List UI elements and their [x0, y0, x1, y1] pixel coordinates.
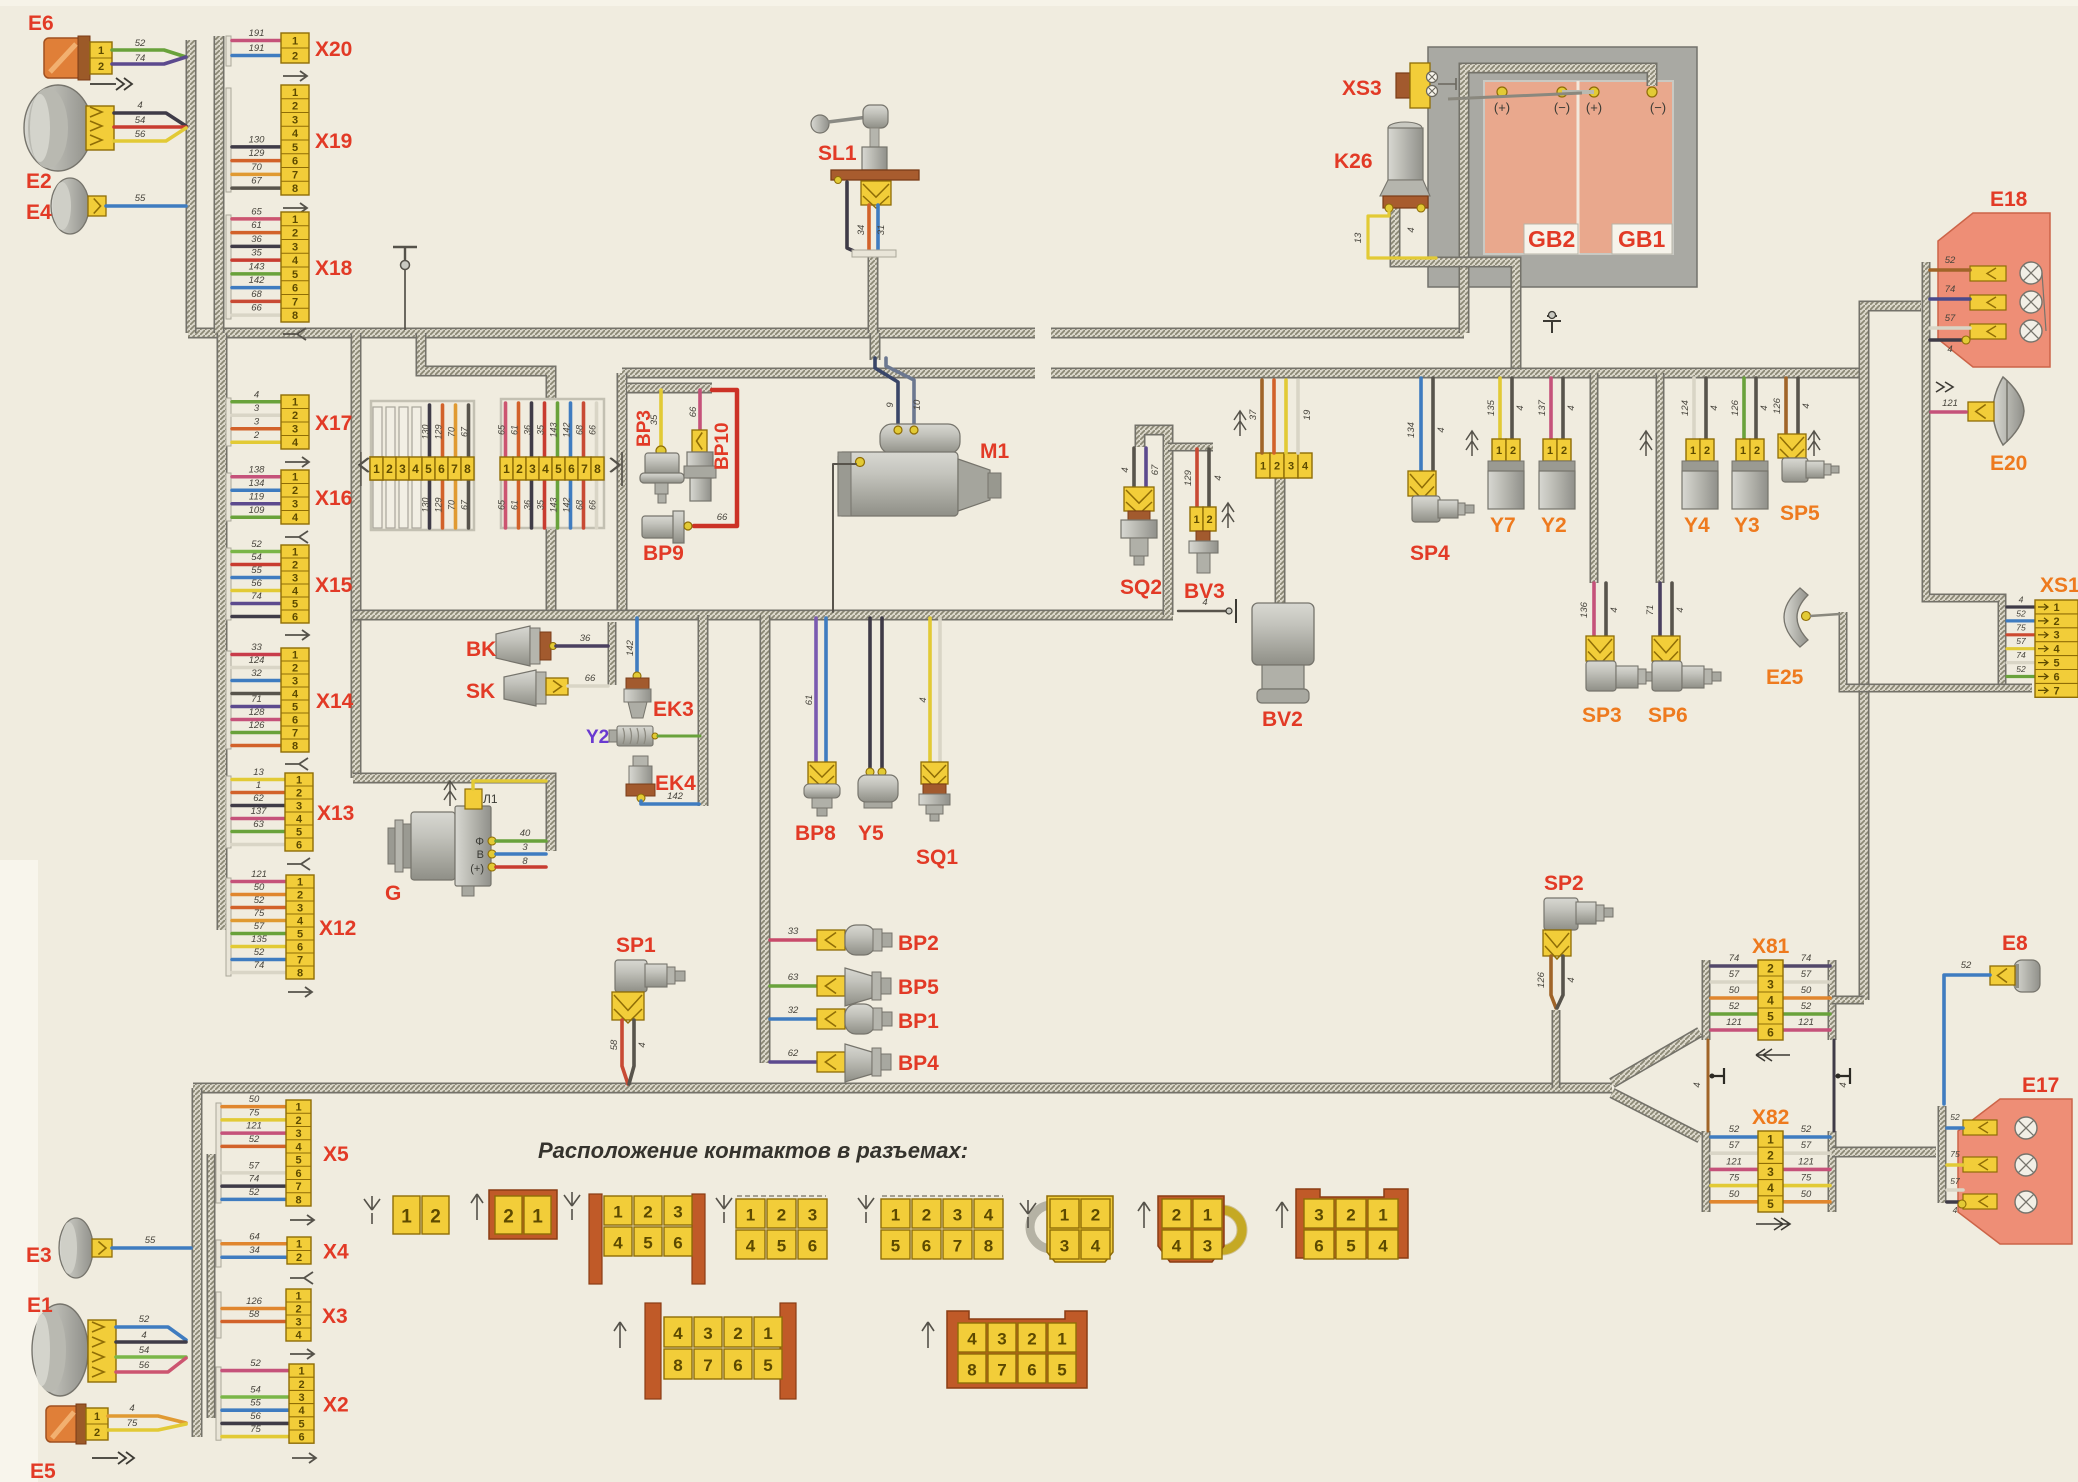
svg-text:4: 4 [1947, 344, 1952, 355]
svg-text:6: 6 [1027, 1360, 1036, 1379]
svg-text:3: 3 [1767, 1165, 1774, 1179]
svg-text:75: 75 [1729, 1173, 1740, 1184]
svg-text:4: 4 [1172, 1236, 1182, 1255]
svg-text:1: 1 [292, 546, 298, 558]
svg-text:Л1: Л1 [483, 792, 498, 806]
svg-text:1: 1 [292, 87, 298, 99]
svg-text:BP4: BP4 [898, 1052, 939, 1075]
svg-text:136: 136 [1579, 601, 1590, 618]
svg-text:X13: X13 [317, 802, 354, 825]
svg-text:74: 74 [2016, 650, 2026, 660]
svg-text:6: 6 [295, 1168, 301, 1180]
svg-text:57: 57 [1945, 313, 1956, 324]
svg-text:126: 126 [1772, 397, 1783, 414]
svg-text:52: 52 [254, 895, 265, 906]
svg-text:137: 137 [1537, 399, 1548, 416]
svg-text:5: 5 [292, 598, 298, 610]
svg-text:54: 54 [250, 1385, 261, 1396]
svg-text:X81: X81 [1752, 935, 1790, 958]
svg-text:1: 1 [2053, 602, 2059, 614]
svg-text:Y2: Y2 [1541, 514, 1567, 537]
svg-text:134: 134 [249, 478, 265, 489]
svg-text:7: 7 [292, 727, 298, 739]
svg-text:SQ2: SQ2 [1120, 576, 1162, 599]
svg-text:SP5: SP5 [1780, 502, 1820, 525]
svg-text:3: 3 [1060, 1236, 1069, 1255]
svg-text:3: 3 [292, 424, 298, 436]
svg-text:1: 1 [297, 876, 303, 888]
svg-text:7: 7 [997, 1360, 1006, 1379]
svg-text:57: 57 [1729, 969, 1740, 980]
svg-text:4: 4 [1709, 405, 1720, 410]
svg-text:67: 67 [460, 426, 470, 437]
svg-text:4: 4 [1436, 427, 1447, 432]
svg-text:1: 1 [1496, 445, 1502, 457]
svg-text:4: 4 [2053, 644, 2060, 656]
svg-text:4: 4 [918, 697, 929, 702]
svg-text:4: 4 [412, 462, 419, 476]
svg-text:E1: E1 [27, 1294, 53, 1317]
svg-text:4: 4 [1759, 405, 1770, 410]
svg-text:5: 5 [1767, 1197, 1774, 1211]
svg-text:4: 4 [1675, 607, 1686, 612]
svg-text:130: 130 [249, 134, 266, 145]
svg-text:E5: E5 [30, 1460, 56, 1482]
svg-text:13: 13 [1353, 232, 1364, 243]
svg-text:4: 4 [1302, 460, 1309, 472]
svg-text:74: 74 [254, 960, 265, 971]
svg-text:(−): (−) [1554, 100, 1570, 115]
svg-text:2: 2 [503, 1206, 514, 1227]
svg-text:33: 33 [251, 642, 262, 653]
svg-text:XS3: XS3 [1342, 77, 1382, 100]
svg-text:70: 70 [447, 427, 457, 437]
svg-text:36: 36 [523, 500, 533, 510]
svg-text:130: 130 [421, 497, 431, 512]
svg-text:2: 2 [1767, 1149, 1774, 1163]
svg-text:BP8: BP8 [795, 822, 836, 845]
svg-text:5: 5 [777, 1236, 786, 1255]
svg-text:6: 6 [438, 462, 445, 476]
svg-text:4: 4 [292, 585, 299, 597]
svg-text:5: 5 [555, 462, 562, 476]
svg-text:BP9: BP9 [643, 542, 684, 565]
svg-text:33: 33 [788, 926, 799, 937]
svg-text:66: 66 [688, 406, 699, 417]
svg-text:52: 52 [1729, 1001, 1740, 1012]
svg-text:57: 57 [2016, 636, 2026, 646]
svg-text:61: 61 [251, 220, 262, 231]
svg-text:128: 128 [249, 707, 266, 718]
svg-text:75: 75 [250, 1424, 261, 1435]
svg-text:6: 6 [292, 156, 298, 168]
svg-text:7: 7 [292, 169, 298, 181]
svg-text:2: 2 [292, 485, 298, 497]
svg-text:3: 3 [292, 572, 298, 584]
svg-text:19: 19 [1302, 409, 1313, 420]
svg-text:X82: X82 [1752, 1106, 1789, 1129]
svg-text:8: 8 [967, 1360, 976, 1379]
svg-text:Y4: Y4 [1684, 514, 1710, 537]
svg-text:E3: E3 [26, 1244, 52, 1267]
svg-text:4: 4 [1609, 607, 1620, 612]
svg-text:2: 2 [1704, 445, 1710, 457]
svg-text:52: 52 [1801, 1001, 1812, 1012]
svg-text:121: 121 [1798, 1017, 1814, 1028]
svg-text:55: 55 [135, 193, 146, 204]
svg-text:1: 1 [401, 1206, 412, 1227]
svg-text:63: 63 [253, 819, 264, 830]
svg-text:8: 8 [292, 740, 298, 752]
svg-text:8: 8 [297, 967, 303, 979]
svg-text:4: 4 [613, 1233, 623, 1252]
svg-text:56: 56 [250, 1411, 261, 1422]
svg-text:4: 4 [984, 1205, 994, 1224]
svg-text:7: 7 [703, 1356, 712, 1375]
svg-text:4: 4 [1406, 227, 1417, 232]
svg-text:E2: E2 [26, 170, 52, 193]
svg-text:32: 32 [251, 668, 262, 679]
svg-text:2: 2 [296, 787, 302, 799]
svg-text:X4: X4 [323, 1241, 349, 1264]
svg-text:50: 50 [1801, 1189, 1812, 1200]
svg-text:57: 57 [1950, 1176, 1960, 1186]
svg-text:1: 1 [292, 397, 298, 409]
svg-text:3: 3 [292, 241, 298, 253]
svg-text:1: 1 [298, 1366, 304, 1378]
svg-text:67: 67 [251, 176, 262, 187]
svg-text:52: 52 [2016, 664, 2026, 674]
svg-text:121: 121 [1726, 1156, 1742, 1167]
svg-text:109: 109 [249, 505, 266, 516]
svg-text:6: 6 [296, 839, 302, 851]
svg-text:55: 55 [250, 1398, 261, 1409]
svg-text:4: 4 [1767, 993, 1774, 1007]
svg-text:126: 126 [249, 720, 266, 731]
svg-text:X5: X5 [323, 1143, 349, 1166]
svg-text:1: 1 [1203, 1205, 1212, 1224]
svg-text:191: 191 [249, 28, 265, 39]
svg-text:BP10: BP10 [712, 422, 733, 470]
svg-text:75: 75 [254, 908, 265, 919]
svg-text:4: 4 [298, 1405, 305, 1417]
svg-text:3: 3 [295, 1128, 301, 1140]
svg-text:4: 4 [1566, 405, 1577, 410]
svg-text:5: 5 [292, 701, 298, 713]
svg-text:M1: M1 [980, 440, 1009, 463]
svg-text:B: B [477, 849, 484, 861]
svg-text:74: 74 [1945, 284, 1956, 295]
svg-text:2: 2 [98, 61, 104, 73]
svg-text:52: 52 [139, 1314, 150, 1325]
svg-text:52: 52 [250, 1358, 261, 1369]
svg-text:3: 3 [2053, 630, 2059, 642]
svg-text:4: 4 [295, 1329, 302, 1341]
svg-text:10: 10 [912, 399, 923, 410]
svg-text:4: 4 [292, 688, 299, 700]
svg-text:34: 34 [249, 1245, 260, 1256]
svg-text:71: 71 [251, 694, 262, 705]
svg-text:3: 3 [953, 1205, 962, 1224]
svg-text:2: 2 [1561, 445, 1567, 457]
svg-text:56: 56 [135, 129, 146, 140]
svg-text:7: 7 [581, 462, 588, 476]
svg-text:1: 1 [532, 1206, 543, 1227]
svg-text:(+): (+) [1494, 100, 1510, 115]
svg-text:52: 52 [1950, 1112, 1960, 1122]
svg-text:56: 56 [251, 578, 262, 589]
svg-text:BV2: BV2 [1262, 708, 1303, 731]
svg-text:8: 8 [984, 1236, 993, 1255]
svg-text:54: 54 [251, 552, 262, 563]
svg-text:135: 135 [1486, 399, 1497, 416]
svg-text:4: 4 [542, 462, 549, 476]
svg-text:7: 7 [297, 954, 303, 966]
svg-text:1: 1 [1767, 1132, 1774, 1146]
svg-text:4: 4 [292, 255, 299, 267]
svg-text:4: 4 [1767, 1181, 1774, 1195]
svg-text:121: 121 [1942, 398, 1958, 409]
svg-text:2: 2 [386, 462, 393, 476]
svg-text:8: 8 [292, 310, 298, 322]
svg-text:5: 5 [891, 1236, 900, 1255]
svg-text:2: 2 [1754, 445, 1760, 457]
svg-text:57: 57 [254, 921, 265, 932]
svg-text:3: 3 [808, 1205, 817, 1224]
svg-text:SP4: SP4 [1410, 542, 1450, 565]
svg-text:5: 5 [292, 142, 298, 154]
svg-text:40: 40 [520, 828, 531, 839]
svg-text:62: 62 [788, 1048, 799, 1059]
svg-text:142: 142 [667, 791, 684, 802]
svg-text:3: 3 [297, 902, 303, 914]
svg-text:E17: E17 [2022, 1074, 2059, 1097]
svg-text:1: 1 [1193, 514, 1199, 526]
svg-text:5: 5 [2053, 658, 2059, 670]
svg-text:3: 3 [292, 114, 298, 126]
svg-text:BP2: BP2 [898, 932, 939, 955]
svg-text:G: G [385, 882, 401, 905]
svg-text:67: 67 [460, 499, 470, 510]
svg-text:2: 2 [253, 430, 260, 441]
svg-text:130: 130 [421, 424, 431, 439]
svg-text:56: 56 [139, 1360, 150, 1371]
svg-text:3: 3 [254, 416, 260, 427]
svg-text:XS1: XS1 [2040, 574, 2078, 597]
svg-text:58: 58 [609, 1039, 620, 1050]
svg-text:61: 61 [804, 695, 815, 706]
svg-text:6: 6 [922, 1236, 931, 1255]
svg-text:143: 143 [549, 422, 559, 437]
svg-text:2: 2 [430, 1206, 441, 1227]
svg-text:4: 4 [673, 1324, 683, 1343]
svg-text:52: 52 [1945, 255, 1956, 266]
svg-text:SQ1: SQ1 [916, 846, 958, 869]
svg-text:4: 4 [1801, 403, 1812, 408]
svg-text:6: 6 [292, 714, 298, 726]
svg-text:1: 1 [746, 1205, 755, 1224]
svg-text:57: 57 [1729, 1140, 1740, 1151]
svg-text:4: 4 [967, 1329, 977, 1348]
svg-text:5: 5 [292, 269, 298, 281]
svg-text:66: 66 [717, 512, 728, 523]
svg-text:1: 1 [296, 1239, 302, 1251]
svg-text:4: 4 [292, 512, 299, 524]
svg-text:138: 138 [249, 464, 266, 475]
svg-text:4: 4 [137, 100, 142, 111]
svg-text:1: 1 [373, 462, 380, 476]
svg-text:54: 54 [139, 1345, 150, 1356]
svg-text:63: 63 [788, 972, 799, 983]
svg-text:5: 5 [643, 1233, 652, 1252]
svg-text:36: 36 [251, 234, 262, 245]
svg-text:6: 6 [1767, 1025, 1774, 1039]
svg-text:Расположение контактов в разъе: Расположение контактов в разъемах: [538, 1138, 968, 1163]
svg-text:52: 52 [1729, 1124, 1740, 1135]
svg-text:36: 36 [523, 425, 533, 435]
svg-text:X2: X2 [323, 1394, 349, 1417]
svg-text:(+): (+) [1586, 100, 1602, 115]
svg-text:2: 2 [516, 462, 523, 476]
svg-text:2: 2 [94, 1427, 100, 1439]
svg-text:BK: BK [466, 638, 496, 661]
svg-text:3: 3 [254, 403, 260, 414]
svg-text:4: 4 [1838, 1082, 1849, 1087]
svg-text:71: 71 [1645, 605, 1656, 616]
svg-text:1: 1 [256, 780, 261, 791]
svg-text:142: 142 [562, 497, 572, 512]
svg-text:(−): (−) [1650, 100, 1666, 115]
svg-text:1: 1 [1378, 1205, 1387, 1224]
svg-text:61: 61 [510, 500, 520, 510]
svg-text:4: 4 [1202, 597, 1207, 608]
svg-text:137: 137 [251, 806, 268, 817]
svg-text:E20: E20 [1990, 452, 2027, 475]
svg-text:X19: X19 [315, 130, 352, 153]
svg-text:7: 7 [451, 462, 458, 476]
svg-text:Y7: Y7 [1490, 514, 1516, 537]
svg-text:31: 31 [876, 225, 887, 236]
svg-text:57: 57 [1801, 969, 1812, 980]
svg-text:E8: E8 [2002, 932, 2028, 955]
svg-text:2: 2 [2053, 616, 2059, 628]
svg-text:5: 5 [1057, 1360, 1066, 1379]
svg-text:SP1: SP1 [616, 934, 656, 957]
svg-text:75: 75 [1801, 1173, 1812, 1184]
svg-text:X17: X17 [315, 412, 352, 435]
svg-text:4: 4 [637, 1042, 648, 1047]
svg-text:4: 4 [1566, 977, 1577, 982]
svg-text:2: 2 [1767, 961, 1774, 975]
svg-text:GB1: GB1 [1618, 226, 1666, 252]
svg-text:E4: E4 [26, 201, 52, 224]
svg-text:2: 2 [777, 1205, 786, 1224]
svg-text:70: 70 [251, 162, 262, 173]
svg-text:121: 121 [1726, 1017, 1742, 1028]
svg-text:2: 2 [733, 1324, 742, 1343]
svg-text:1: 1 [1260, 460, 1266, 472]
svg-text:3: 3 [292, 675, 298, 687]
svg-text:Φ: Φ [475, 836, 484, 848]
svg-text:5: 5 [425, 462, 432, 476]
svg-text:6: 6 [292, 611, 298, 623]
svg-text:4: 4 [1091, 1236, 1101, 1255]
svg-text:2: 2 [1091, 1205, 1100, 1224]
svg-text:68: 68 [251, 289, 262, 300]
svg-text:5: 5 [297, 928, 303, 940]
svg-text:(+): (+) [470, 863, 484, 875]
svg-text:75: 75 [1950, 1149, 1960, 1159]
svg-text:9: 9 [885, 402, 896, 408]
svg-text:X20: X20 [315, 38, 352, 61]
svg-text:6: 6 [673, 1233, 682, 1252]
svg-text:1: 1 [295, 1290, 301, 1302]
svg-text:3: 3 [703, 1324, 712, 1343]
svg-text:34: 34 [856, 225, 867, 236]
svg-text:X16: X16 [315, 487, 352, 510]
svg-text:129: 129 [1183, 469, 1194, 486]
svg-text:Y5: Y5 [858, 822, 884, 845]
svg-text:3: 3 [997, 1329, 1006, 1348]
svg-text:4: 4 [1515, 405, 1526, 410]
svg-text:4: 4 [1692, 1082, 1703, 1087]
svg-text:2: 2 [1346, 1205, 1355, 1224]
svg-text:35: 35 [251, 248, 262, 259]
svg-text:8: 8 [292, 183, 298, 195]
svg-text:52: 52 [2016, 608, 2026, 618]
svg-text:8: 8 [295, 1194, 301, 1206]
svg-text:142: 142 [562, 422, 572, 437]
svg-text:1: 1 [292, 472, 298, 484]
svg-text:2: 2 [292, 410, 298, 422]
svg-text:124: 124 [1680, 400, 1691, 416]
svg-text:50: 50 [249, 1094, 260, 1105]
svg-text:75: 75 [249, 1107, 260, 1118]
svg-text:3: 3 [399, 462, 406, 476]
svg-text:67: 67 [1150, 464, 1161, 475]
svg-text:143: 143 [249, 261, 266, 272]
svg-text:5: 5 [296, 826, 302, 838]
svg-text:52: 52 [254, 947, 265, 958]
svg-text:121: 121 [251, 869, 267, 880]
svg-text:3: 3 [673, 1202, 682, 1221]
svg-text:126: 126 [1536, 971, 1547, 988]
svg-text:3: 3 [295, 1316, 301, 1328]
svg-text:3: 3 [296, 800, 302, 812]
svg-text:124: 124 [249, 655, 265, 666]
svg-text:74: 74 [1729, 953, 1740, 964]
svg-text:4: 4 [129, 1403, 134, 1414]
svg-text:1: 1 [891, 1205, 900, 1224]
svg-text:52: 52 [249, 1187, 260, 1198]
svg-text:52: 52 [249, 1134, 260, 1145]
svg-text:2: 2 [1172, 1205, 1181, 1224]
svg-text:3: 3 [1767, 977, 1774, 991]
svg-text:1: 1 [98, 45, 104, 57]
svg-text:1: 1 [1057, 1329, 1066, 1348]
svg-text:68: 68 [575, 500, 585, 510]
svg-text:126: 126 [1730, 399, 1741, 416]
svg-text:4: 4 [1953, 1205, 1958, 1215]
svg-text:52: 52 [135, 38, 146, 49]
svg-text:4: 4 [141, 1330, 146, 1341]
svg-text:6: 6 [297, 941, 303, 953]
svg-text:Y3: Y3 [1734, 514, 1760, 537]
svg-text:191: 191 [249, 43, 265, 54]
svg-text:74: 74 [1801, 953, 1812, 964]
svg-text:4: 4 [297, 915, 304, 927]
svg-text:2: 2 [298, 1379, 304, 1391]
